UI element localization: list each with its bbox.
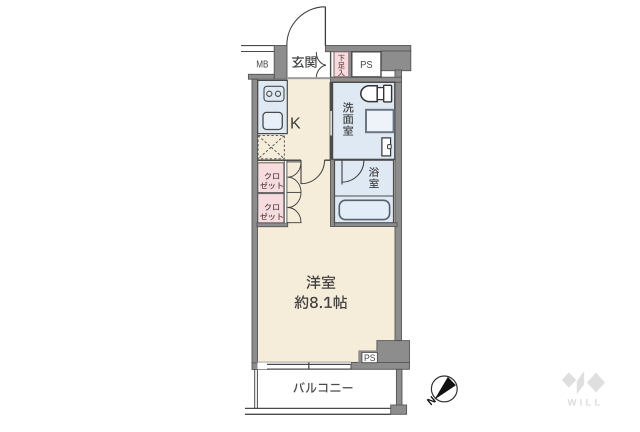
svg-text:PS: PS [360,60,373,71]
svg-text:K: K [290,116,301,133]
svg-text:PS: PS [364,353,376,364]
svg-text:MB: MB [256,59,268,70]
svg-text:WILL: WILL [568,398,604,409]
